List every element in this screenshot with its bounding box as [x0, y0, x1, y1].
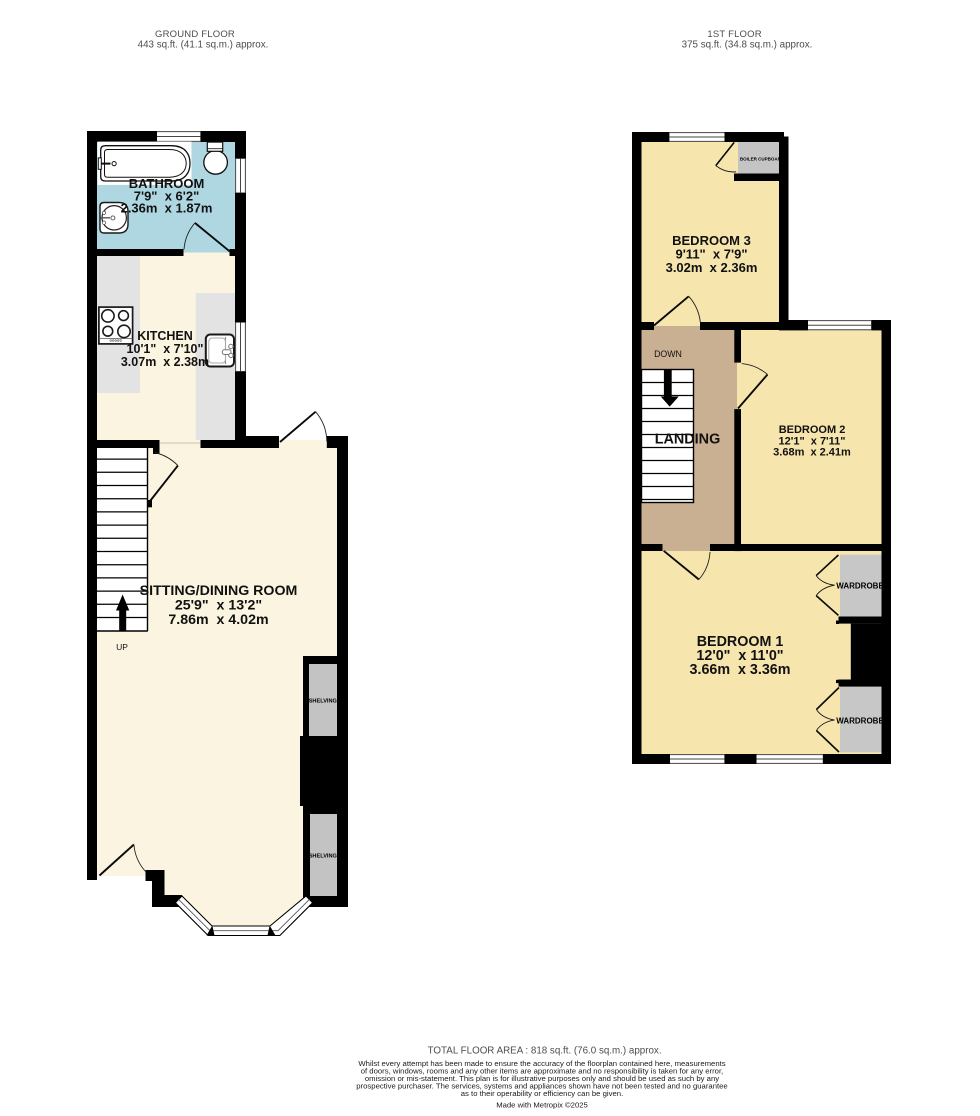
svg-text:KITCHEN: KITCHEN	[137, 329, 193, 343]
svg-text:TOTAL FLOOR AREA : 818 sq.ft.: TOTAL FLOOR AREA : 818 sq.ft. (76.0 sq.m…	[428, 1046, 662, 1057]
svg-text:DOWN: DOWN	[654, 349, 682, 359]
svg-text:10'1" x 7'10": 10'1" x 7'10"	[127, 342, 204, 356]
svg-text:3.68m x 2.41m: 3.68m x 2.41m	[773, 447, 851, 459]
svg-text:3.66m x 3.36m: 3.66m x 3.36m	[690, 662, 791, 678]
svg-text:WARDROBE: WARDROBE	[836, 717, 884, 726]
svg-text:443 sq.ft. (41.1 sq.m.) approx: 443 sq.ft. (41.1 sq.m.) approx.	[138, 40, 269, 51]
svg-text:WARDROBE: WARDROBE	[836, 582, 884, 591]
svg-text:LANDING: LANDING	[655, 432, 721, 448]
svg-text:2.36m x 1.87m: 2.36m x 1.87m	[121, 201, 213, 216]
svg-text:375 sq.ft. (34.8 sq.m.) approx: 375 sq.ft. (34.8 sq.m.) approx.	[682, 40, 813, 51]
svg-text:7.86m x 4.02m: 7.86m x 4.02m	[168, 612, 268, 628]
svg-text:as to their operability or eff: as to their operability or efficiency ca…	[461, 1089, 623, 1098]
svg-text:GROUND FLOOR: GROUND FLOOR	[155, 29, 235, 40]
svg-text:1ST FLOOR: 1ST FLOOR	[707, 29, 761, 40]
svg-text:12'1" x 7'11": 12'1" x 7'11"	[778, 435, 845, 447]
svg-text:BOILER CUPBOARD: BOILER CUPBOARD	[740, 157, 785, 162]
svg-text:BEDROOM 2: BEDROOM 2	[779, 424, 846, 436]
svg-text:3.02m x 2.36m: 3.02m x 2.36m	[666, 260, 758, 275]
svg-text:SHELVING: SHELVING	[309, 699, 337, 705]
svg-text:3.07m x 2.38m: 3.07m x 2.38m	[121, 355, 209, 369]
svg-text:Made with Metropix ©2025: Made with Metropix ©2025	[496, 1101, 588, 1110]
svg-text:SHELVING: SHELVING	[309, 854, 337, 860]
svg-text:UP: UP	[116, 642, 128, 652]
